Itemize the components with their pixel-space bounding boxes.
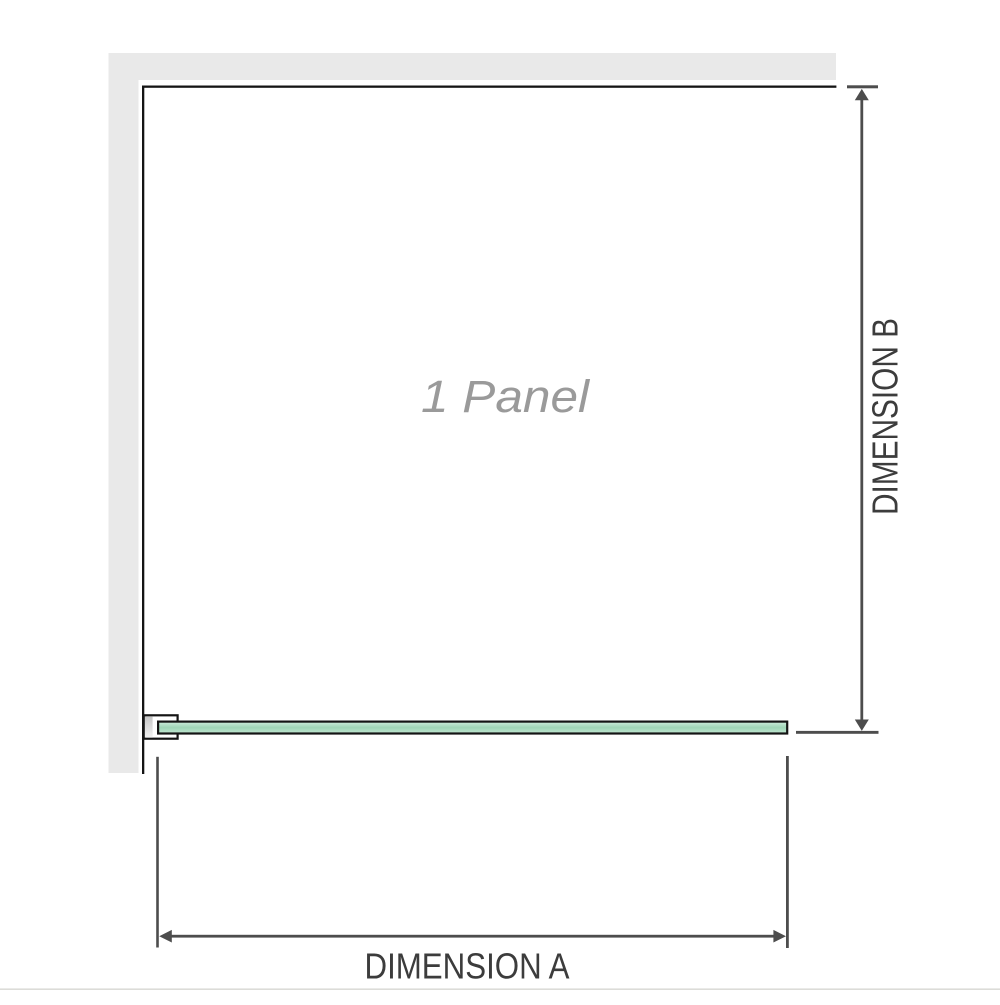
svg-text:DIMENSION B: DIMENSION B — [864, 318, 905, 515]
svg-text:1 Panel: 1 Panel — [421, 371, 591, 422]
svg-text:DIMENSION A: DIMENSION A — [365, 947, 570, 987]
